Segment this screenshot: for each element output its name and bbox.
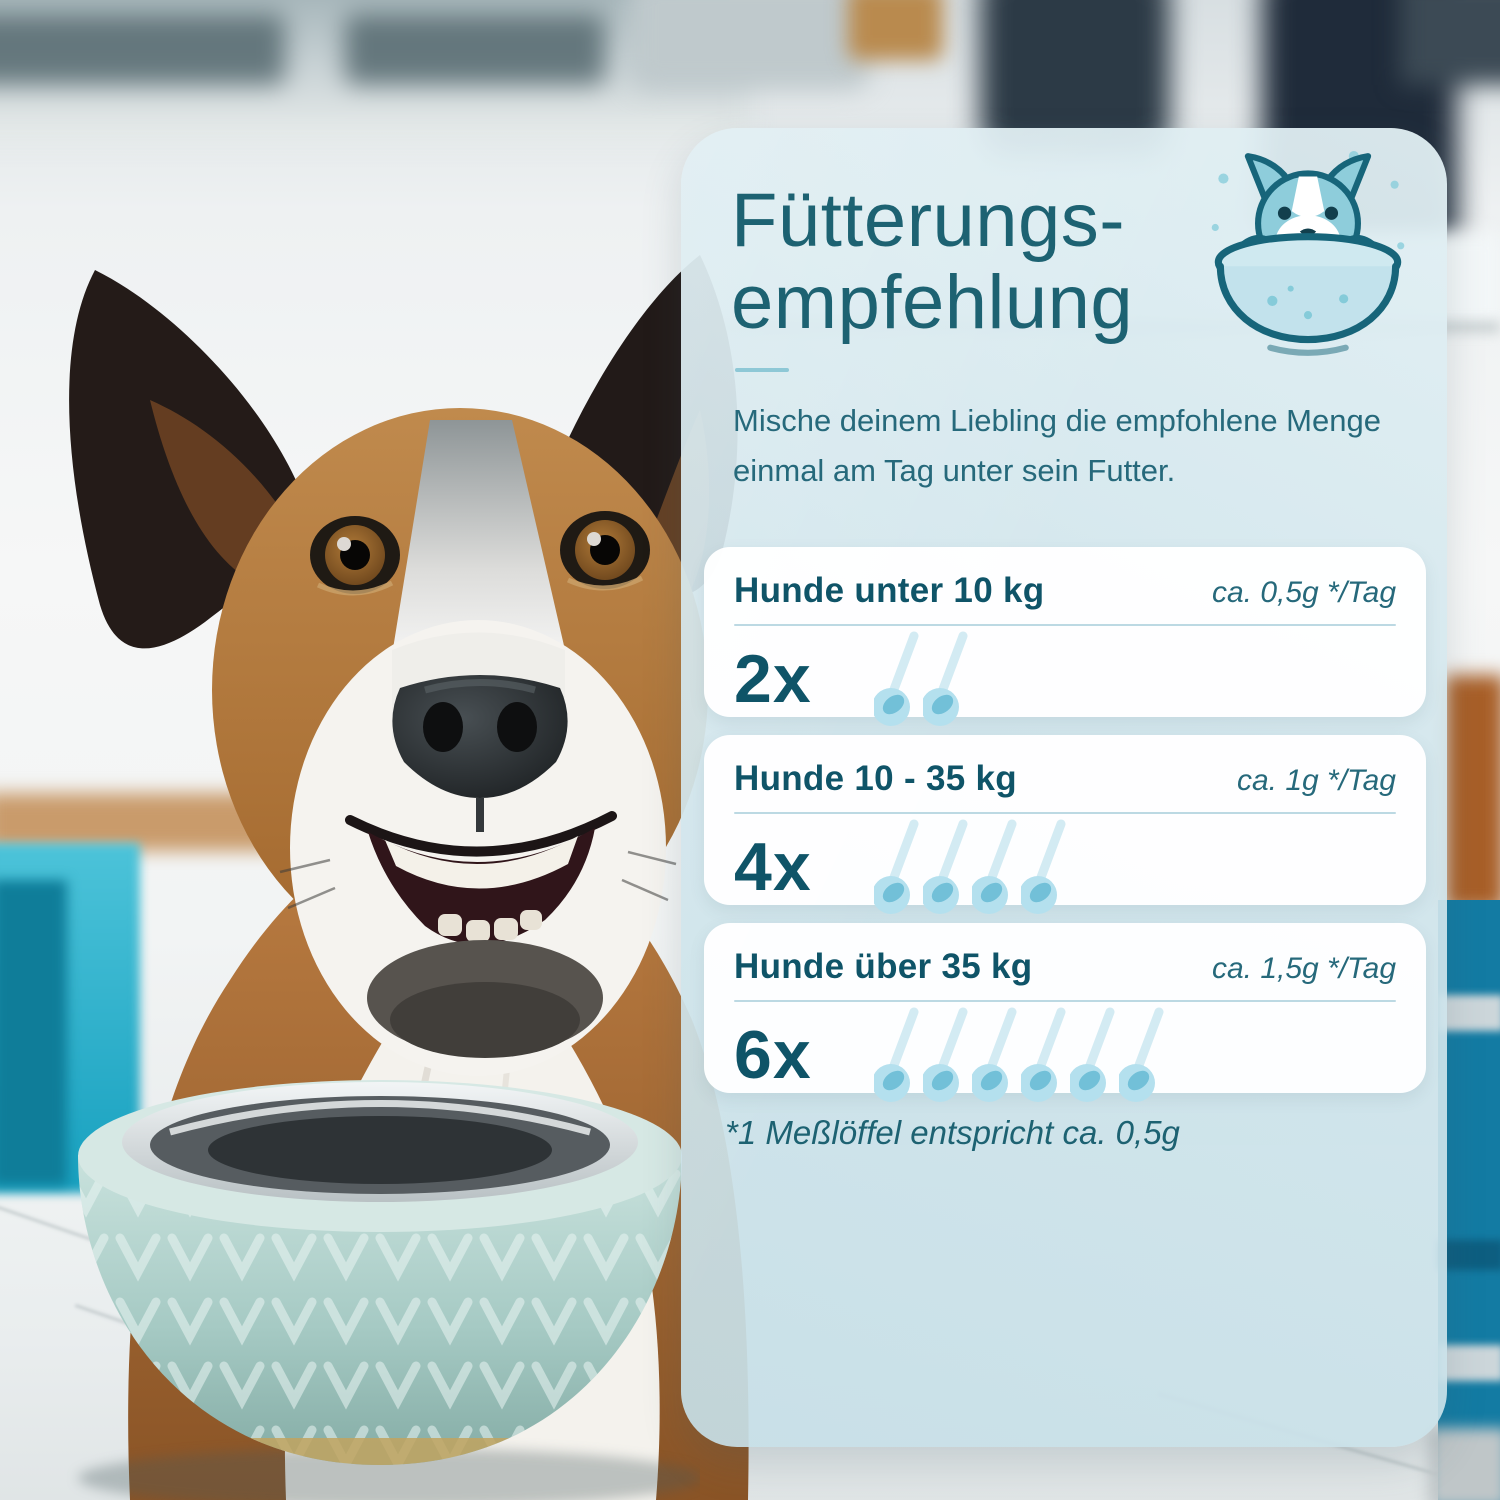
hood-vent (0, 15, 285, 85)
wood-chair-blur (1445, 675, 1500, 910)
card-divider (734, 812, 1396, 814)
card-divider (734, 624, 1396, 626)
measuring-spoon-icon (874, 630, 920, 730)
weight-class-label: Hunde über 35 kg (734, 947, 1032, 987)
measuring-spoon-icon (923, 630, 969, 730)
appliance-blur (630, 0, 870, 90)
daily-dose-label: ca. 0,5g */Tag (1212, 576, 1396, 610)
blue-cabinet (1438, 900, 1500, 1500)
card-divider (734, 1000, 1396, 1002)
hood-vent (345, 15, 605, 85)
title-divider (735, 368, 789, 372)
intro-text: Mische deinem Liebling die empfohlene Me… (733, 396, 1393, 495)
measuring-spoon-icon (1070, 1006, 1116, 1106)
dog-left-eye (310, 516, 400, 594)
floor-corner (1428, 1428, 1500, 1500)
cabinet-shadow (1438, 1240, 1500, 1270)
appliance-blur (1400, 0, 1500, 85)
spoon-count-label: 6x (734, 1016, 812, 1094)
cabinet-handle (1438, 1345, 1500, 1381)
cabinet-handle (1438, 995, 1500, 1031)
dog-right-eye (560, 511, 650, 589)
measuring-spoon-icon (972, 818, 1018, 918)
dose-table: Hunde unter 10 kg ca. 0,5g */Tag 2x Hund… (704, 547, 1426, 1093)
dose-card-small-dogs: Hunde unter 10 kg ca. 0,5g */Tag 2x (704, 547, 1426, 717)
dose-card-large-dogs: Hunde über 35 kg ca. 1,5g */Tag 6x (704, 923, 1426, 1093)
infographic-canvas: Fütterungs- empfehlung (0, 0, 1500, 1500)
spoon-footnote: *1 Meßlöffel entspricht ca. 0,5g (725, 1114, 1180, 1152)
measuring-spoon-icon (874, 818, 920, 918)
measuring-spoon-icon (1021, 1006, 1067, 1106)
daily-dose-label: ca. 1g */Tag (1237, 764, 1396, 798)
measuring-spoon-icon (923, 1006, 969, 1106)
feeding-recommendation-panel: Fütterungs- empfehlung (681, 128, 1447, 1447)
dog-in-bowl-icon (1201, 146, 1415, 364)
measuring-spoon-icon (1119, 1006, 1165, 1106)
measuring-spoon-icon (923, 818, 969, 918)
spoon-icons (874, 628, 972, 730)
spoon-count-label: 2x (734, 640, 812, 718)
measuring-spoon-icon (1021, 818, 1067, 918)
title-line-2: empfehlung (731, 262, 1133, 344)
page-title: Fütterungs- empfehlung (731, 180, 1133, 344)
measuring-spoon-icon (874, 1006, 920, 1106)
weight-class-label: Hunde 10 - 35 kg (734, 759, 1017, 799)
dose-card-medium-dogs: Hunde 10 - 35 kg ca. 1g */Tag 4x (704, 735, 1426, 905)
title-line-1: Fütterungs- (731, 180, 1133, 262)
spoon-count-label: 4x (734, 828, 812, 906)
daily-dose-label: ca. 1,5g */Tag (1212, 952, 1396, 986)
spoon-icons (874, 816, 1070, 918)
weight-class-label: Hunde unter 10 kg (734, 571, 1044, 611)
ceramic-bowl (60, 1040, 700, 1500)
spoon-icons (874, 1004, 1168, 1106)
measuring-spoon-icon (972, 1006, 1018, 1106)
cutting-board-blur (848, 0, 943, 60)
